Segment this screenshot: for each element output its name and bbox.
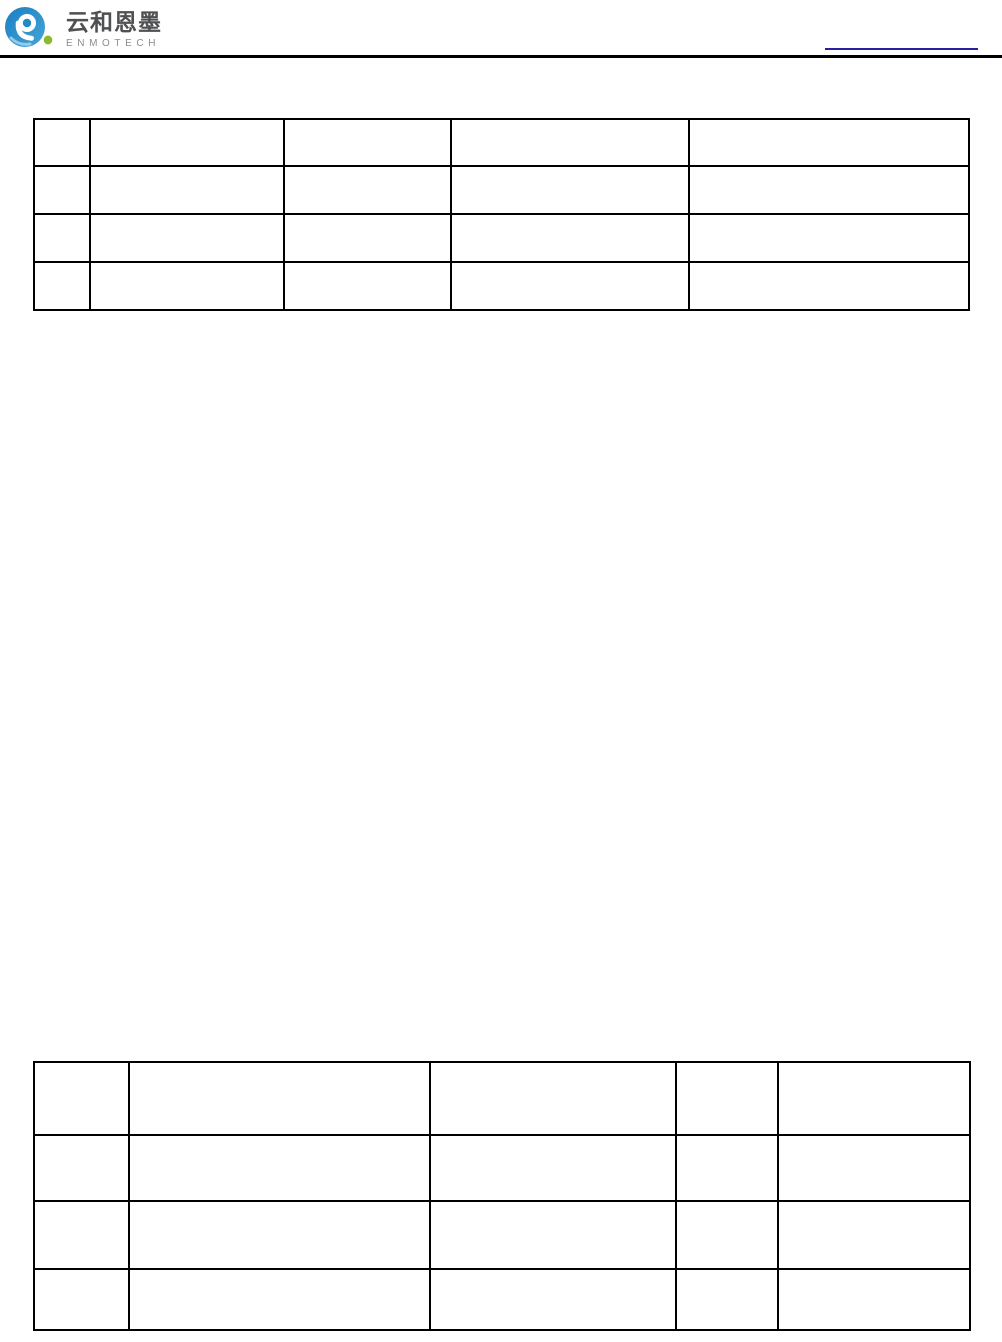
table-cell	[34, 1062, 129, 1135]
document-page: 云和恩墨 ENMOTECH	[0, 0, 1002, 1342]
table-cell	[689, 214, 969, 262]
table-cell	[129, 1201, 430, 1269]
logo-name-chinese: 云和恩墨	[66, 12, 162, 35]
table-cell	[90, 119, 284, 166]
bottom-table	[33, 1061, 971, 1331]
table-row	[34, 166, 969, 214]
table-cell	[34, 1135, 129, 1201]
table-cell	[778, 1062, 970, 1135]
table-cell	[451, 119, 689, 166]
table-cell	[90, 262, 284, 310]
table-cell	[129, 1135, 430, 1201]
table-cell	[430, 1201, 676, 1269]
table-row	[34, 1201, 970, 1269]
table-row	[34, 1135, 970, 1201]
table-cell	[451, 262, 689, 310]
table-cell	[778, 1201, 970, 1269]
logo-text: 云和恩墨 ENMOTECH	[66, 4, 162, 49]
company-logo: 云和恩墨 ENMOTECH	[4, 4, 162, 50]
table-cell	[129, 1062, 430, 1135]
table-cell	[90, 214, 284, 262]
blank-hyperlink-underline	[825, 48, 978, 50]
table-cell	[430, 1269, 676, 1330]
table-cell	[34, 214, 90, 262]
table-cell	[284, 166, 451, 214]
bottom-table-body	[34, 1062, 970, 1330]
table-cell	[34, 262, 90, 310]
table-cell	[689, 119, 969, 166]
table-cell	[778, 1269, 970, 1330]
table-cell	[284, 214, 451, 262]
table-cell	[34, 1201, 129, 1269]
table-cell	[689, 262, 969, 310]
enmotech-logo-icon	[4, 4, 54, 50]
table-cell	[129, 1269, 430, 1330]
table-cell	[34, 119, 90, 166]
table-cell	[34, 1269, 129, 1330]
logo-name-latin: ENMOTECH	[66, 39, 162, 49]
top-table-body	[34, 119, 969, 310]
table-cell	[676, 1201, 778, 1269]
table-cell	[430, 1135, 676, 1201]
table-cell	[284, 262, 451, 310]
table-row	[34, 119, 969, 166]
table-cell	[778, 1135, 970, 1201]
table-cell	[451, 166, 689, 214]
top-table	[33, 118, 970, 311]
table-cell	[676, 1135, 778, 1201]
table-cell	[451, 214, 689, 262]
table-cell	[90, 166, 284, 214]
table-cell	[676, 1062, 778, 1135]
table-cell	[34, 166, 90, 214]
table-row	[34, 262, 969, 310]
table-row	[34, 1269, 970, 1330]
header-divider-rule	[0, 55, 1002, 58]
table-row	[34, 1062, 970, 1135]
table-row	[34, 214, 969, 262]
table-cell	[284, 119, 451, 166]
table-cell	[676, 1269, 778, 1330]
table-cell	[689, 166, 969, 214]
table-cell	[430, 1062, 676, 1135]
